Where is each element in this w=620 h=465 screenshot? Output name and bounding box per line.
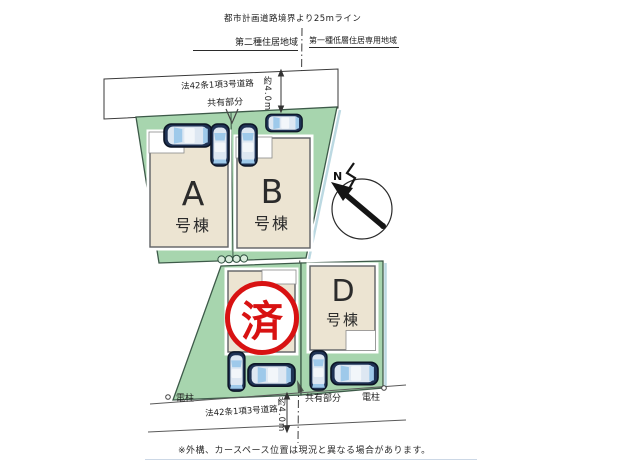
plot-b-suffix: 号棟 <box>237 210 307 234</box>
plot-d-label: D 号棟 <box>312 277 374 330</box>
car-icon <box>266 114 302 131</box>
top-width-label: 約4.0m <box>261 76 271 110</box>
top-shared-label: 共有部分 <box>207 97 243 109</box>
car-icon <box>164 124 212 147</box>
plot-a-letter: A <box>158 177 228 210</box>
pole-left-label: 電柱 <box>176 394 194 404</box>
plot-a-label: A 号棟 <box>158 177 228 236</box>
zoning-right-label: 第一種低層住居専用地域 <box>309 36 399 48</box>
car-icon <box>331 362 378 384</box>
plot-b-letter: B <box>237 175 307 208</box>
pole-right-label: 電柱 <box>362 393 380 403</box>
zoning-left-label: 第二種住居地域 <box>193 38 298 51</box>
utility-pole-icon <box>166 395 171 400</box>
site-plan-page: 都市計画道路境界より25mライン 第二種住居地域 第一種低層住居専用地域 法42… <box>0 0 620 465</box>
plot-d-suffix: 号棟 <box>312 309 374 330</box>
bottom-width-label: 約4.0m <box>275 397 285 429</box>
plot-b-label: B 号棟 <box>237 175 307 234</box>
car-icon <box>228 352 245 391</box>
sold-stamp: 済 <box>225 281 299 355</box>
compass-north-label: N <box>333 170 342 183</box>
car-icon <box>310 351 327 390</box>
plot-a-suffix: 号棟 <box>158 212 228 236</box>
footnote-divider <box>145 459 477 460</box>
car-icon <box>211 124 229 166</box>
utility-pole-icon <box>382 386 387 391</box>
footnote: ※外構、カースペース位置は現況と異なる場合があります。 <box>178 443 478 456</box>
car-icon <box>248 364 295 386</box>
plot-d-letter: D <box>312 277 374 307</box>
car-icon <box>239 124 257 166</box>
bottom-shared-label: 共有部分 <box>305 394 341 404</box>
planning-line-label: 都市計画道路境界より25mライン <box>224 15 361 25</box>
